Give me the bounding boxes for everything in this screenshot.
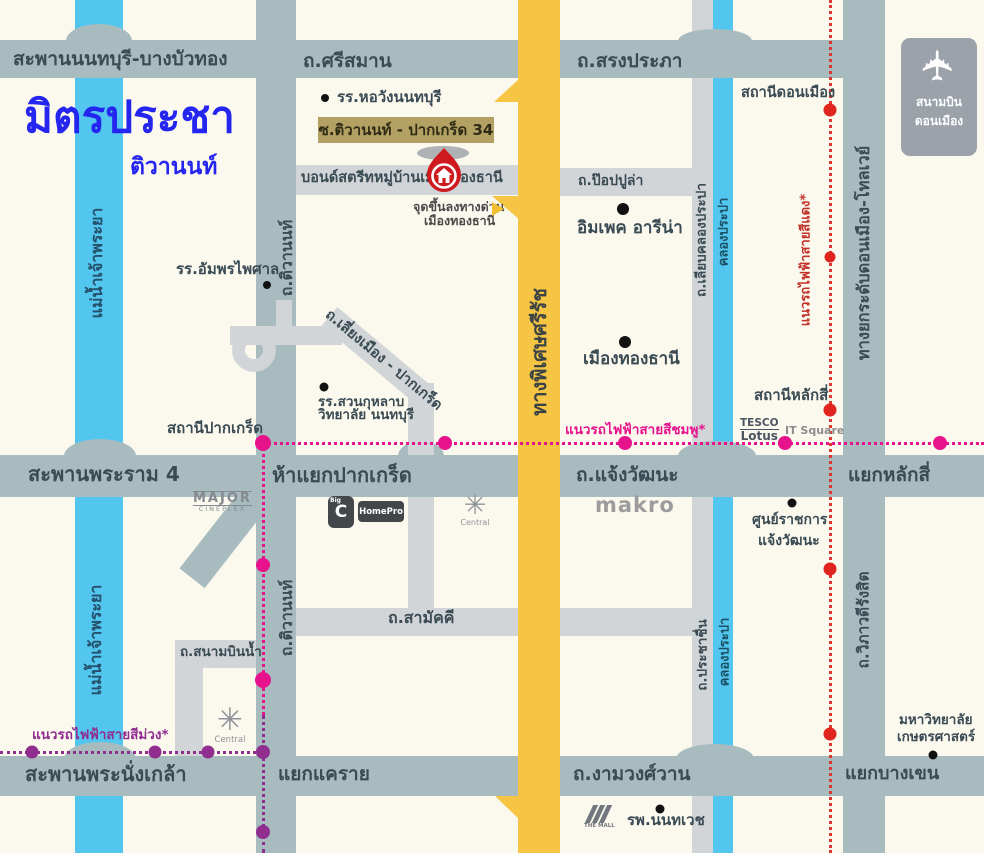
sirat-expressway bbox=[518, 0, 560, 853]
poi-kasetsart-line2: เกษตรศาสตร์ bbox=[897, 730, 975, 745]
pink-station-dot bbox=[618, 436, 632, 450]
tesco-lotus-logo: TESCO Lotus bbox=[740, 418, 779, 442]
poi-dot-impact bbox=[617, 203, 629, 215]
major-logo-word: MAJOR bbox=[193, 491, 252, 506]
road-label-tiwanon-top: ถ.ติวานนท์ bbox=[279, 220, 295, 297]
road-label-songprapa: ถ.สรงประภา bbox=[577, 51, 682, 72]
pink-station-dot bbox=[438, 436, 452, 450]
donmueang-airport-box: ✈ สนามบิน ดอนเมือง bbox=[901, 38, 977, 156]
road-samakkhi bbox=[296, 608, 692, 636]
pink-station-dot bbox=[255, 672, 271, 688]
poi-impact-arena: อิมเพค อารีน่า bbox=[577, 219, 683, 238]
central-logo-khae-rai: ✳ Central bbox=[208, 705, 252, 745]
poi-dot-kasetsart bbox=[929, 751, 938, 760]
pink-station-dot bbox=[256, 558, 270, 572]
station-label-laksi: สถานีหลักสี่ bbox=[754, 387, 828, 404]
red-station-dot-donmueang bbox=[824, 104, 837, 117]
pink-station-dot bbox=[778, 436, 792, 450]
road-label-ngamwongwan: ถ.งามวงศ์วาน bbox=[573, 764, 691, 785]
poi-dot-amphorn bbox=[263, 281, 271, 289]
road-label-popular: ถ.ป๊อปปูล่า bbox=[578, 174, 643, 189]
road-label-phranangklao: สะพานพระนั่งเกล้า bbox=[25, 763, 187, 785]
road-label-bond-street: บอนด์สตรีทหมู่บ้านเมืองทองธานี bbox=[301, 171, 503, 187]
bridge-bump bbox=[676, 744, 754, 759]
canal-label-top: คลองประปา bbox=[718, 198, 731, 267]
pink-station-dot-pakkret bbox=[255, 435, 271, 451]
map-canvas: มิตรประชา ติวานนท์ สะพานนนทบุรี-บางบัวทอ… bbox=[0, 0, 984, 853]
junction-label-hayaek-pakkret: ห้าแยกปากเกร็ด bbox=[272, 464, 412, 486]
poi-kasetsart-line1: มหาวิทยาลัย bbox=[899, 713, 973, 728]
station-label-donmueang: สถานีดอนเมือง bbox=[741, 86, 835, 102]
poi-horwang-school: รร.หอวังนนทบุรี bbox=[337, 89, 441, 106]
road-label-prachachuen: ถ.ประชาชื่น bbox=[696, 619, 710, 691]
road-label-rama4: สะพานพระราม 4 bbox=[28, 463, 180, 485]
road-tollway bbox=[843, 0, 885, 853]
pink-station-dot bbox=[933, 436, 947, 450]
central-logo-word: Central bbox=[208, 736, 252, 745]
station-label-pakkret: สถานีปากเกร็ด bbox=[167, 420, 263, 437]
road-label-tiwanon-bottom: ถ.ติวานนท์ bbox=[279, 580, 295, 657]
road-label-srisaman: ถ.ศรีสมาน bbox=[303, 51, 392, 72]
road-label-sanambin-nam: ถ.สนามบินน้ำ bbox=[180, 645, 262, 660]
purple-line-label: แนวรถไฟฟ้าสายสีม่วง* bbox=[32, 728, 169, 743]
poi-amphorn-school: รร.อัมพรไพศาล bbox=[176, 261, 279, 278]
purple-station-dot bbox=[26, 746, 39, 759]
tesco-logo-word: TESCO bbox=[740, 418, 779, 430]
poi-it-square: IT Square bbox=[785, 425, 844, 437]
road-label-tollway: ทางยกระดับดอนเมือง-โทลเวย์ bbox=[856, 146, 873, 360]
river-label-bottom: แม่น้ำเจ้าพระยา bbox=[88, 585, 104, 696]
road-liang-muang-loop bbox=[232, 328, 276, 372]
airplane-icon: ✈ bbox=[912, 27, 967, 103]
red-station-dot bbox=[825, 252, 836, 263]
bigc-logo-letter: C bbox=[335, 502, 347, 522]
poi-suankularb-line2: วิทยาลัย นนทบุรี bbox=[318, 408, 414, 423]
road-label-vibhavadi: ถ.วิภาวดีรังสิต bbox=[856, 571, 872, 668]
road-label-liab-klong-prapa: ถ.เลียบคลองประปา bbox=[695, 183, 709, 297]
airport-label-line2: ดอนเมือง bbox=[901, 112, 977, 131]
purple-station-dot bbox=[256, 745, 270, 759]
junction-label-yaek-bangkhen: แยกบางเขน bbox=[845, 764, 939, 784]
klong-prapa-canal bbox=[713, 0, 733, 853]
poi-muang-thong-thani: เมืองทองธานี bbox=[583, 350, 680, 369]
the-mall-bars-icon bbox=[584, 805, 615, 823]
poi-expressway-access-line1: จุดขึ้นลงทางด่วน bbox=[413, 200, 504, 214]
red-station-dot-laksi bbox=[824, 404, 837, 417]
soi-tag-label: ซ.ติวานนท์ - ปากเกร็ด 34 bbox=[319, 118, 494, 142]
lotus-logo-word: Lotus bbox=[740, 430, 779, 442]
road-label-chaengwattana: ถ.แจ้งวัฒนะ bbox=[576, 465, 678, 486]
red-station-dot bbox=[824, 563, 837, 576]
expressway-ramp bbox=[495, 796, 520, 820]
expressway-ramp bbox=[494, 78, 520, 102]
major-cineplex-logo: MAJOR CINEPLEX bbox=[193, 491, 252, 513]
bigc-logo: Big C bbox=[328, 496, 354, 528]
poi-nonthavej-hospital: รพ.นนทเวช bbox=[627, 812, 705, 829]
road-label-samakkhi: ถ.สามัคคี bbox=[388, 609, 454, 627]
poi-dot-nonthavej bbox=[656, 805, 665, 814]
poi-dot-horwang bbox=[321, 94, 329, 102]
canal-label-bottom: คลองประปา bbox=[719, 618, 732, 687]
purple-station-dot bbox=[202, 746, 215, 759]
homepro-logo-word: HomePro bbox=[359, 507, 403, 517]
homepro-logo: HomePro bbox=[358, 501, 404, 522]
junction-label-yaek-khae-rai: แยกแคราย bbox=[278, 764, 370, 785]
cineplex-logo-word: CINEPLEX bbox=[193, 506, 252, 513]
central-logo-chaengwattana: ✳ Central bbox=[455, 492, 495, 527]
soi-tag: ซ.ติวานนท์ - ปากเกร็ด 34 bbox=[318, 117, 494, 143]
purple-station-dot bbox=[149, 746, 162, 759]
purple-station-dot bbox=[256, 825, 270, 839]
poi-govt-center-line1: ศูนย์ราชการ bbox=[752, 513, 827, 528]
the-mall-logo-word: THE MALL bbox=[584, 823, 615, 829]
central-logo-word: Central bbox=[455, 519, 495, 527]
junction-label-yaek-laksi: แยกหลักสี่ bbox=[848, 465, 930, 486]
road-label-bridge-nonthaburi: สะพานนนทบุรี-บางบัวทอง bbox=[13, 49, 228, 70]
map-subtitle: ติวานนท์ bbox=[130, 155, 217, 180]
bigc-logo-small-word: Big bbox=[330, 497, 341, 504]
map-title: มิตรประชา bbox=[24, 94, 235, 142]
location-pin-icon bbox=[424, 147, 464, 197]
central-flower-icon: ✳ bbox=[208, 705, 252, 736]
purple-line-track-h bbox=[0, 751, 263, 754]
red-line-label: แนวรถไฟฟ้าสายสีแดง* bbox=[800, 194, 813, 326]
bridge-bump bbox=[678, 29, 752, 41]
arrow-right-icon bbox=[492, 202, 504, 216]
poi-dot-govt-center bbox=[788, 499, 797, 508]
poi-dot-suankularb bbox=[320, 383, 329, 392]
pink-line-label: แนวรถไฟฟ้าสายสีชมพู* bbox=[565, 423, 705, 438]
road-label-sirat: ทางพิเศษศรีรัช bbox=[529, 288, 549, 416]
central-flower-icon: ✳ bbox=[455, 492, 495, 519]
river-label-top: แม่น้ำเจ้าพระยา bbox=[89, 208, 105, 319]
poi-expressway-access-line2: เมืองทองธานี bbox=[424, 214, 495, 228]
makro-logo: makro bbox=[595, 494, 675, 517]
poi-govt-center-line2: แจ้งวัฒนะ bbox=[758, 534, 820, 549]
the-mall-logo: THE MALL bbox=[584, 805, 615, 829]
red-station-dot bbox=[824, 728, 837, 741]
poi-dot-muangthong bbox=[619, 336, 631, 348]
